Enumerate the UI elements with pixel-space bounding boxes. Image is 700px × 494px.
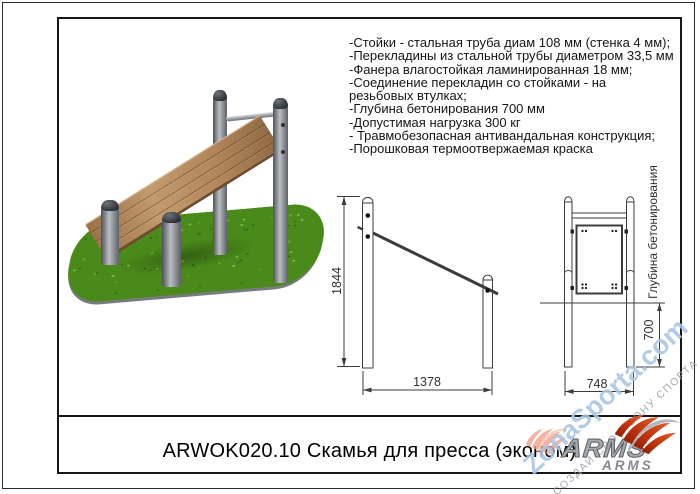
spec-line: -Глубина бетонирования 700 мм bbox=[349, 102, 684, 115]
spec-line: -Фанера влагостойкая ламинированная 18 м… bbox=[349, 63, 684, 76]
spec-line: -Порошковая термоотвержаемая краска bbox=[349, 142, 684, 155]
dim-label-width: 748 bbox=[587, 377, 608, 391]
dim-label-depth: 700 bbox=[642, 320, 656, 341]
spec-line: -Перекладины из стальной трубы диаметром… bbox=[349, 49, 684, 62]
side-view-drawing bbox=[337, 197, 498, 396]
spec-line: - Травмобезопасная антивандальная констр… bbox=[349, 129, 684, 142]
dim-label-height: 1844 bbox=[330, 267, 344, 295]
arms-wordmark-small: ARMS bbox=[602, 458, 654, 473]
spec-line: -Стойки - стальная труба диам 108 мм (ст… bbox=[349, 36, 684, 49]
arms-logo: ARMS ARMS bbox=[556, 413, 684, 473]
arms-hand-icon bbox=[608, 413, 684, 457]
datasheet-page: -Стойки - стальная труба диам 108 мм (ст… bbox=[0, 0, 700, 494]
spec-line: резьбовых втулках; bbox=[349, 89, 684, 102]
spec-list: -Стойки - стальная труба диам 108 мм (ст… bbox=[349, 36, 684, 156]
spec-line: -Соединение перекладин со стойками - на bbox=[349, 76, 684, 89]
spec-line: -Допустимая нагрузка 300 кг bbox=[349, 116, 684, 129]
dim-label-length: 1378 bbox=[413, 375, 441, 389]
foundation-depth-axis-label: Глубина бетонирования bbox=[646, 165, 660, 299]
